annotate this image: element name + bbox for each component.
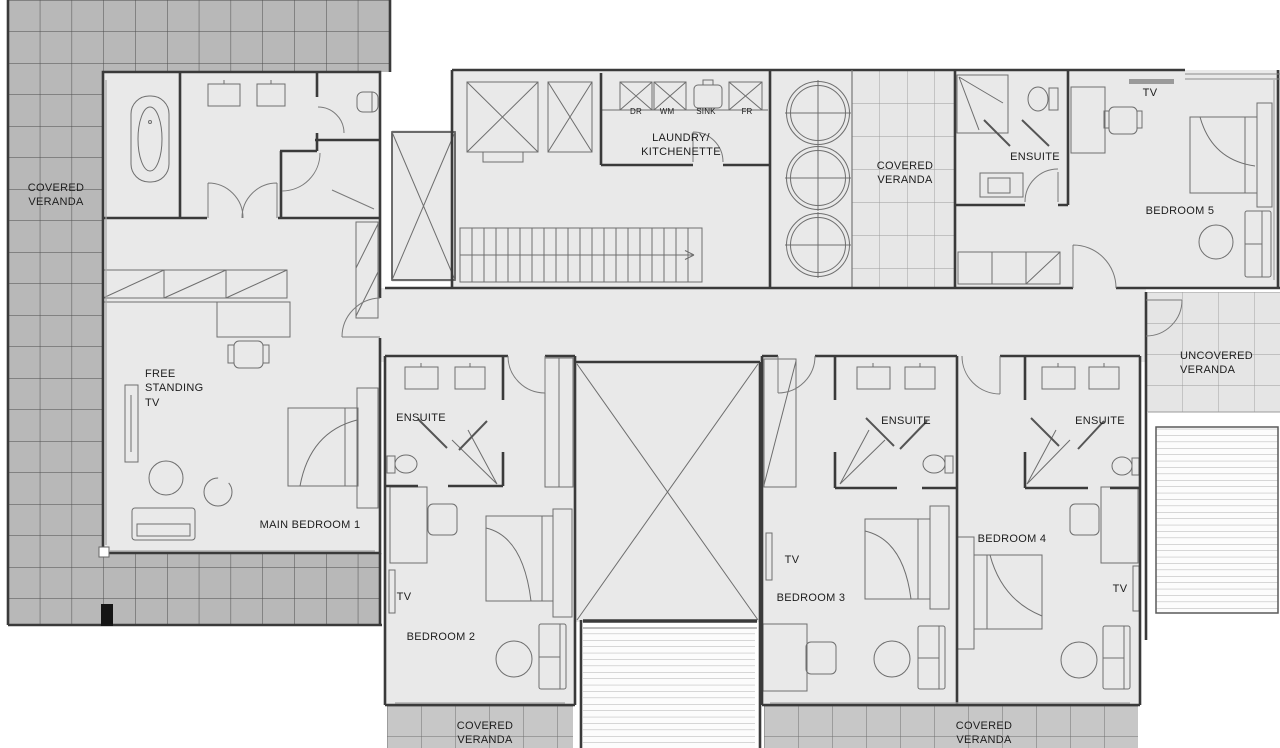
label-bedroom-4: BEDROOM 4	[952, 532, 1072, 546]
label-uncovered-veranda: UNCOVERED VERANDA	[1180, 349, 1275, 378]
deck-center	[583, 621, 757, 748]
label-ensuite-2: ENSUITE	[381, 411, 461, 425]
label-ensuite-4: ENSUITE	[1060, 414, 1140, 428]
deck-uncovered-veranda	[1156, 427, 1278, 613]
label-tv-3: TV	[777, 553, 807, 567]
label-veranda-middle: COVERED VERANDA	[863, 159, 947, 188]
label-tv-5: TV	[1135, 86, 1165, 100]
label-veranda-top-left: COVERED VERANDA	[14, 181, 98, 210]
label-appliance-wm: WM	[652, 107, 682, 117]
label-veranda-bottom-right: COVERED VERANDA	[942, 719, 1026, 748]
label-ensuite-3: ENSUITE	[866, 414, 946, 428]
label-main-bedroom-1: MAIN BEDROOM 1	[230, 518, 390, 532]
label-bedroom-2: BEDROOM 2	[381, 630, 501, 644]
label-tv-2: TV	[389, 590, 419, 604]
label-tv-4: TV	[1105, 582, 1135, 596]
label-appliance-fr: FR	[732, 107, 762, 117]
label-appliance-sink: SINK	[691, 107, 721, 117]
label-bedroom-5: BEDROOM 5	[1110, 204, 1250, 218]
label-appliance-dr: DR	[621, 107, 651, 117]
label-ensuite-5: ENSUITE	[995, 150, 1075, 164]
label-bedroom-3: BEDROOM 3	[751, 591, 871, 605]
label-veranda-bottom-left: COVERED VERANDA	[443, 719, 527, 748]
label-laundry-kitchenette: LAUNDRY/ KITCHENETTE	[621, 131, 741, 160]
floor-plan: COVERED VERANDA FREE STANDING TV MAIN BE…	[0, 0, 1280, 748]
label-free-standing-tv: FREE STANDING TV	[145, 367, 225, 410]
